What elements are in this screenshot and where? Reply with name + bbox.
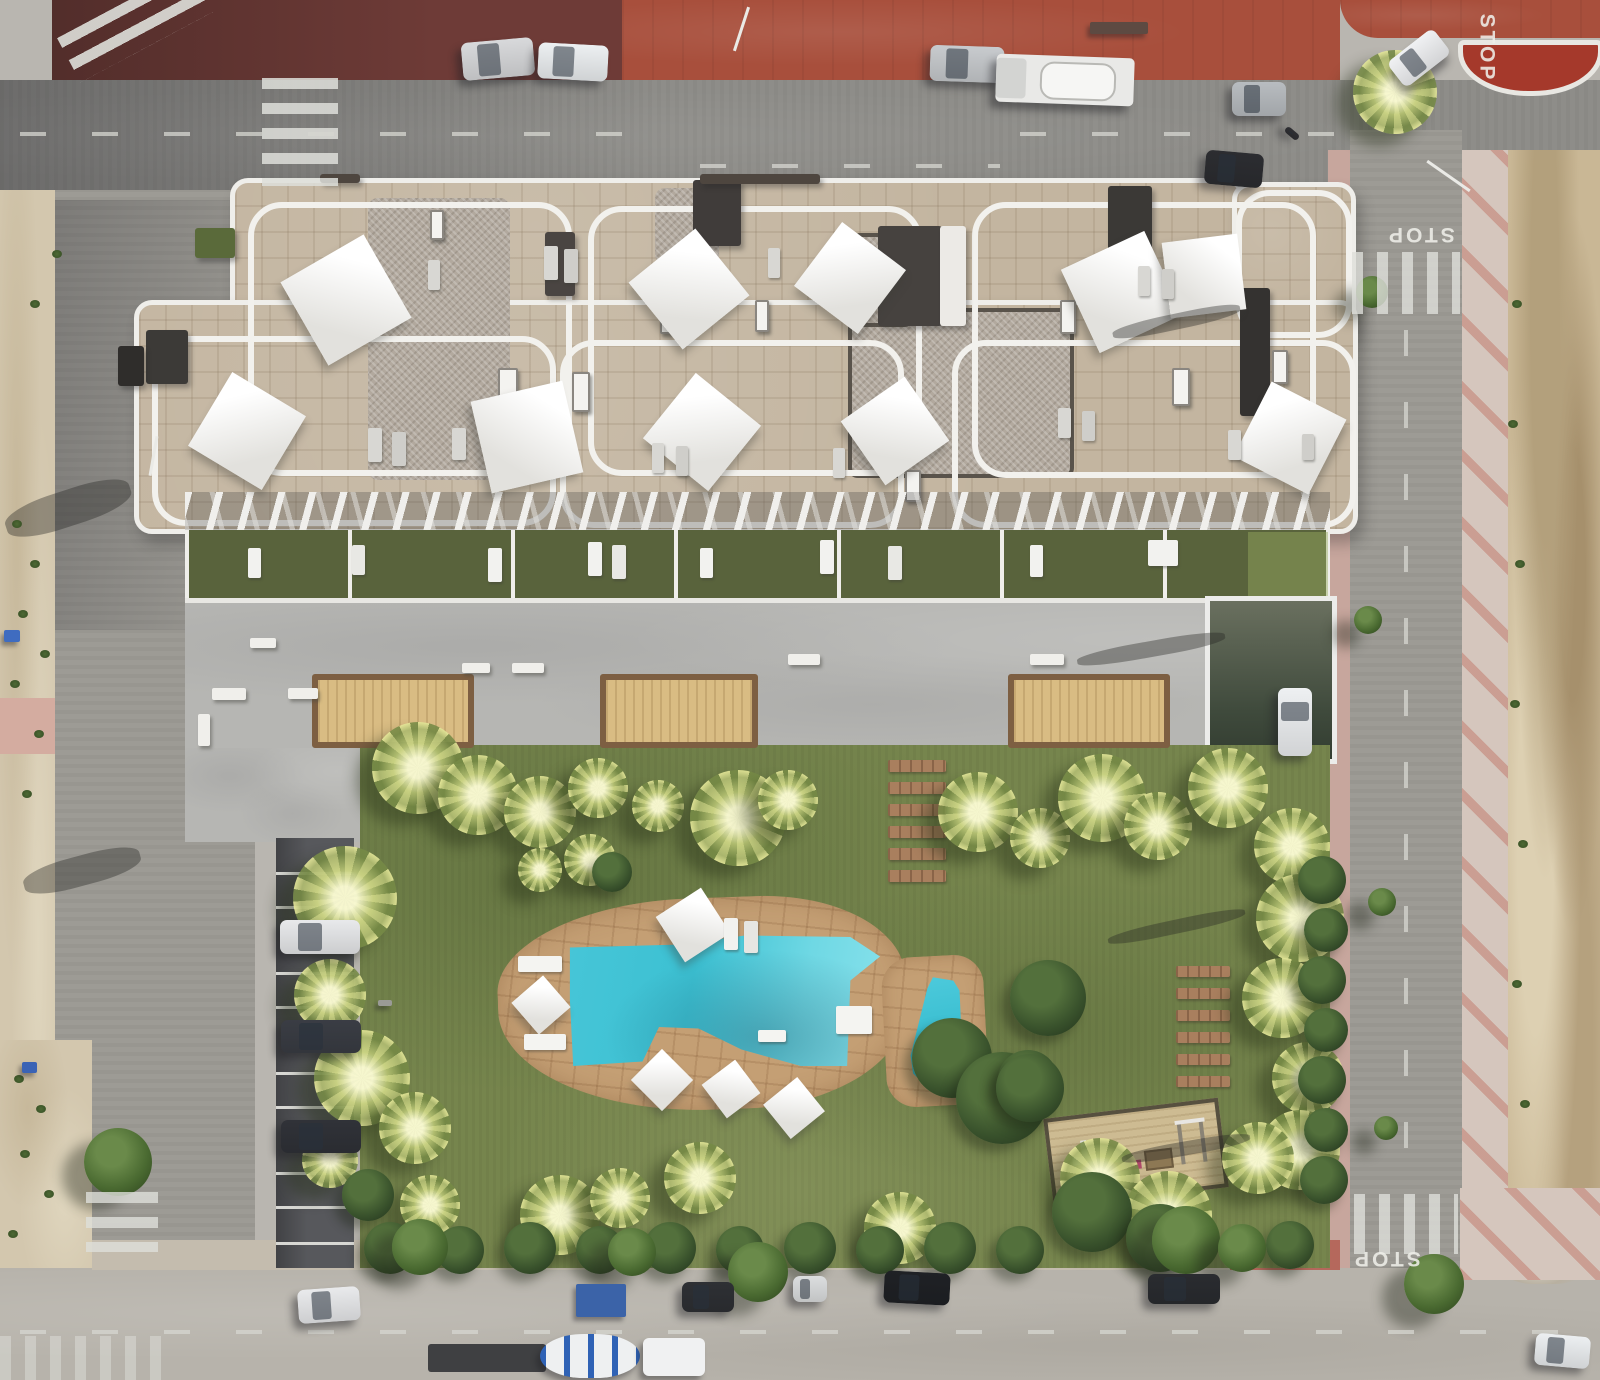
palm-tree: [518, 848, 562, 892]
street-object: [4, 630, 20, 642]
bush: [924, 1222, 976, 1274]
weed: [20, 1150, 30, 1158]
weed: [1512, 300, 1522, 308]
car: [883, 1270, 951, 1305]
pergola-band: [185, 492, 1330, 532]
sun-lounger: [1082, 411, 1095, 441]
truck-flatbed: [428, 1344, 546, 1372]
wood-step: [888, 826, 946, 838]
wood-step: [888, 870, 946, 882]
sun-lounger: [724, 918, 738, 950]
mixer-drum: [540, 1334, 640, 1378]
sun-lounger: [1302, 434, 1314, 460]
roof-vent: [1172, 368, 1190, 406]
dirt-lot: [1508, 150, 1600, 1208]
palm-tree: [504, 776, 576, 848]
bush: [1298, 856, 1346, 904]
wood-step: [1176, 1076, 1230, 1087]
wood-step: [888, 760, 946, 772]
palm-tree: [632, 780, 684, 832]
car-windshield: [477, 43, 502, 77]
bench: [198, 714, 210, 746]
car: [297, 1286, 361, 1324]
bush: [996, 1054, 1064, 1122]
parking-apron: [185, 748, 363, 842]
car-windshield: [1244, 85, 1260, 113]
private-garden-light: [1248, 532, 1328, 598]
street-tree: [1368, 888, 1396, 916]
stop-marking: STOP: [1386, 222, 1455, 246]
sun-lounger: [352, 545, 365, 575]
stop-marking: STOP: [1352, 1246, 1421, 1270]
corner-paving-bottom-right: [1460, 1188, 1600, 1280]
bush: [1052, 1172, 1132, 1252]
weed: [1518, 840, 1528, 848]
palm-tree: [1010, 808, 1070, 868]
corner-paving-top-right: [1340, 0, 1600, 38]
car-windshield: [1398, 47, 1427, 78]
car: [1534, 1333, 1592, 1370]
car-windshield: [298, 923, 322, 951]
car: [281, 1020, 361, 1053]
palm-tree: [1124, 792, 1192, 860]
stop-marking-text: STOP: [1475, 14, 1498, 83]
car-windshield: [552, 46, 575, 77]
car: [537, 42, 609, 82]
sun-lounger: [676, 446, 688, 476]
sun-lounger: [488, 548, 502, 582]
stop-marking-text: STOP: [1386, 223, 1455, 246]
weed: [36, 1105, 46, 1113]
roof-vent: [1272, 350, 1288, 384]
weed: [30, 560, 40, 568]
sun-lounger: [1138, 266, 1150, 296]
roof-vent: [430, 210, 444, 240]
weed: [1512, 980, 1522, 988]
wood-step: [888, 848, 946, 860]
sand-planter: [600, 674, 758, 748]
left-pink-path: [0, 698, 55, 754]
car-windshield: [299, 1123, 323, 1150]
car: [281, 1120, 361, 1153]
sun-lounger: [758, 1030, 786, 1042]
palm-tree: [590, 1168, 650, 1228]
weed: [8, 1230, 18, 1238]
weed: [14, 1075, 24, 1083]
bush: [1304, 1008, 1348, 1052]
aerial-scene: STOPSTOPSTOP: [0, 0, 1600, 1380]
weed: [30, 300, 40, 308]
roof-structure: [195, 228, 235, 258]
weed: [40, 650, 50, 658]
sun-lounger: [700, 548, 713, 578]
sun-lounger: [744, 921, 758, 953]
stop-marking: STOP: [1474, 14, 1498, 83]
wood-step: [1176, 1032, 1230, 1043]
weed: [1510, 700, 1520, 708]
sun-lounger: [564, 249, 578, 283]
street-tree: [1218, 1224, 1266, 1272]
sun-lounger: [652, 443, 664, 473]
roof-structure: [700, 174, 820, 184]
garage-ramp: [1205, 596, 1337, 764]
bench: [212, 688, 246, 700]
car-windshield: [1217, 154, 1236, 183]
sun-lounger: [452, 428, 466, 460]
wood-step: [888, 782, 946, 794]
sun-lounger: [1030, 545, 1043, 577]
sun-lounger: [833, 448, 845, 478]
street-tree: [1374, 1116, 1398, 1140]
bush: [1010, 960, 1086, 1036]
sun-lounger: [888, 546, 902, 580]
car: [1204, 150, 1265, 189]
bush: [1304, 1108, 1348, 1152]
truck-cab: [643, 1338, 705, 1376]
palm-tree: [568, 758, 628, 818]
car-windshield: [1164, 1277, 1186, 1301]
roof-vent: [1060, 300, 1076, 334]
palm-tree: [758, 770, 818, 830]
bush: [1266, 1221, 1314, 1269]
car: [460, 37, 535, 81]
sun-lounger: [588, 542, 602, 576]
car-windshield: [945, 48, 968, 79]
car-windshield: [1546, 1337, 1565, 1364]
bench: [1030, 654, 1064, 665]
weed: [12, 520, 22, 528]
sun-lounger: [368, 428, 382, 462]
top-left-gray-corner: [0, 0, 52, 80]
sun-lounger: [1228, 430, 1241, 460]
truck-cab-front: [995, 58, 1026, 99]
street-object: [378, 1000, 392, 1006]
weed: [44, 1190, 54, 1198]
sun-lounger: [248, 548, 261, 578]
weed: [34, 730, 44, 738]
bush: [1304, 908, 1348, 952]
sun-lounger: [392, 432, 406, 466]
parking-line: [276, 1206, 354, 1209]
parking-line: [276, 1242, 354, 1245]
weed: [1515, 560, 1525, 568]
sun-lounger: [1058, 408, 1071, 438]
car-windshield: [1281, 702, 1309, 721]
bush: [342, 1169, 394, 1221]
weed: [52, 250, 62, 258]
bush: [784, 1222, 836, 1274]
street-object: [576, 1284, 626, 1317]
bush: [504, 1222, 556, 1274]
roof-vent: [755, 300, 769, 332]
wood-step: [1176, 1010, 1230, 1021]
bush: [1298, 1056, 1346, 1104]
bench: [250, 638, 276, 648]
sun-lounger: [820, 540, 834, 574]
roof-structure: [118, 346, 144, 386]
sun-lounger: [544, 246, 558, 280]
car: [793, 1276, 827, 1302]
weed: [18, 610, 28, 618]
roof-structure: [146, 330, 188, 384]
weed: [1520, 1100, 1530, 1108]
street-tree: [1152, 1206, 1220, 1274]
bush: [1300, 1156, 1348, 1204]
street-tree: [1356, 276, 1388, 308]
weed: [10, 680, 20, 688]
bush: [996, 1226, 1044, 1274]
street-tree: [392, 1219, 448, 1275]
car-windshield: [800, 1279, 810, 1299]
car-windshield: [693, 1285, 709, 1309]
car-windshield: [299, 1023, 323, 1050]
sun-lounger: [1162, 269, 1174, 299]
palm-tree: [938, 772, 1018, 852]
roof-structure: [940, 226, 966, 326]
roof-vent: [572, 372, 590, 412]
weed: [1508, 420, 1518, 428]
car-windshield: [898, 1274, 919, 1301]
street-object: [22, 1062, 37, 1073]
sun-lounger: [428, 260, 440, 290]
street-tree: [84, 1128, 152, 1196]
street-tree: [1354, 606, 1382, 634]
bench: [788, 654, 820, 665]
wood-step: [1176, 966, 1230, 977]
cement-mixer-truck: [428, 1334, 718, 1380]
flatbed-truck: [995, 54, 1135, 107]
weed: [22, 790, 32, 798]
sun-lounger: [518, 956, 562, 972]
bush: [592, 852, 632, 892]
palm-tree: [1222, 1122, 1294, 1194]
palm-tree: [1188, 748, 1268, 828]
car: [280, 920, 360, 954]
car: [929, 45, 1004, 84]
truck-tank: [1039, 61, 1116, 102]
roof-structure: [320, 174, 360, 183]
street-tree: [608, 1228, 656, 1276]
car-windshield: [1289, 131, 1293, 135]
bench: [512, 663, 544, 673]
bench: [288, 688, 318, 699]
street-tree: [728, 1242, 788, 1302]
car: [1278, 688, 1312, 756]
car: [682, 1282, 734, 1312]
stop-marking-text: STOP: [1352, 1247, 1421, 1270]
sun-lounger: [1148, 540, 1178, 566]
wood-step: [1176, 1054, 1230, 1065]
sun-lounger: [836, 1006, 872, 1034]
palm-tree: [379, 1092, 451, 1164]
street-object: [1090, 22, 1148, 34]
sun-lounger: [524, 1034, 566, 1050]
palm-tree: [664, 1142, 736, 1214]
bench: [462, 663, 490, 673]
car: [1148, 1274, 1220, 1304]
sun-lounger: [768, 248, 780, 278]
bush: [1298, 956, 1346, 1004]
bush: [856, 1226, 904, 1274]
sand-planter: [1008, 674, 1170, 748]
wood-step: [1176, 988, 1230, 999]
car: [1232, 82, 1286, 116]
right-street-east-sidewalk: [1462, 150, 1510, 1208]
car-windshield: [311, 1291, 332, 1320]
sun-lounger: [612, 545, 626, 579]
